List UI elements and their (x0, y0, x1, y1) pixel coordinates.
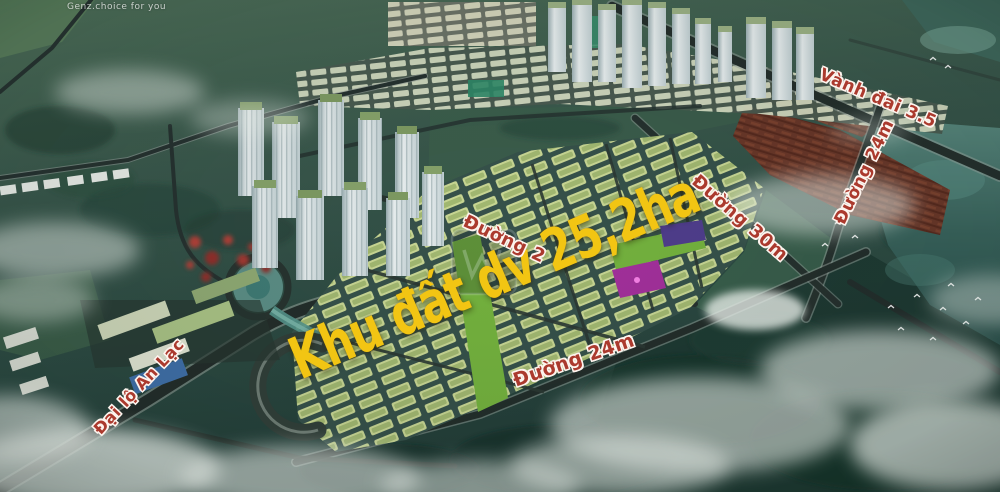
photographer-watermark: Genz.choice for you (67, 2, 166, 12)
masterplan-screenshot: Genz.choice for you Khu đất dv 25,2ha Và… (0, 0, 1000, 492)
